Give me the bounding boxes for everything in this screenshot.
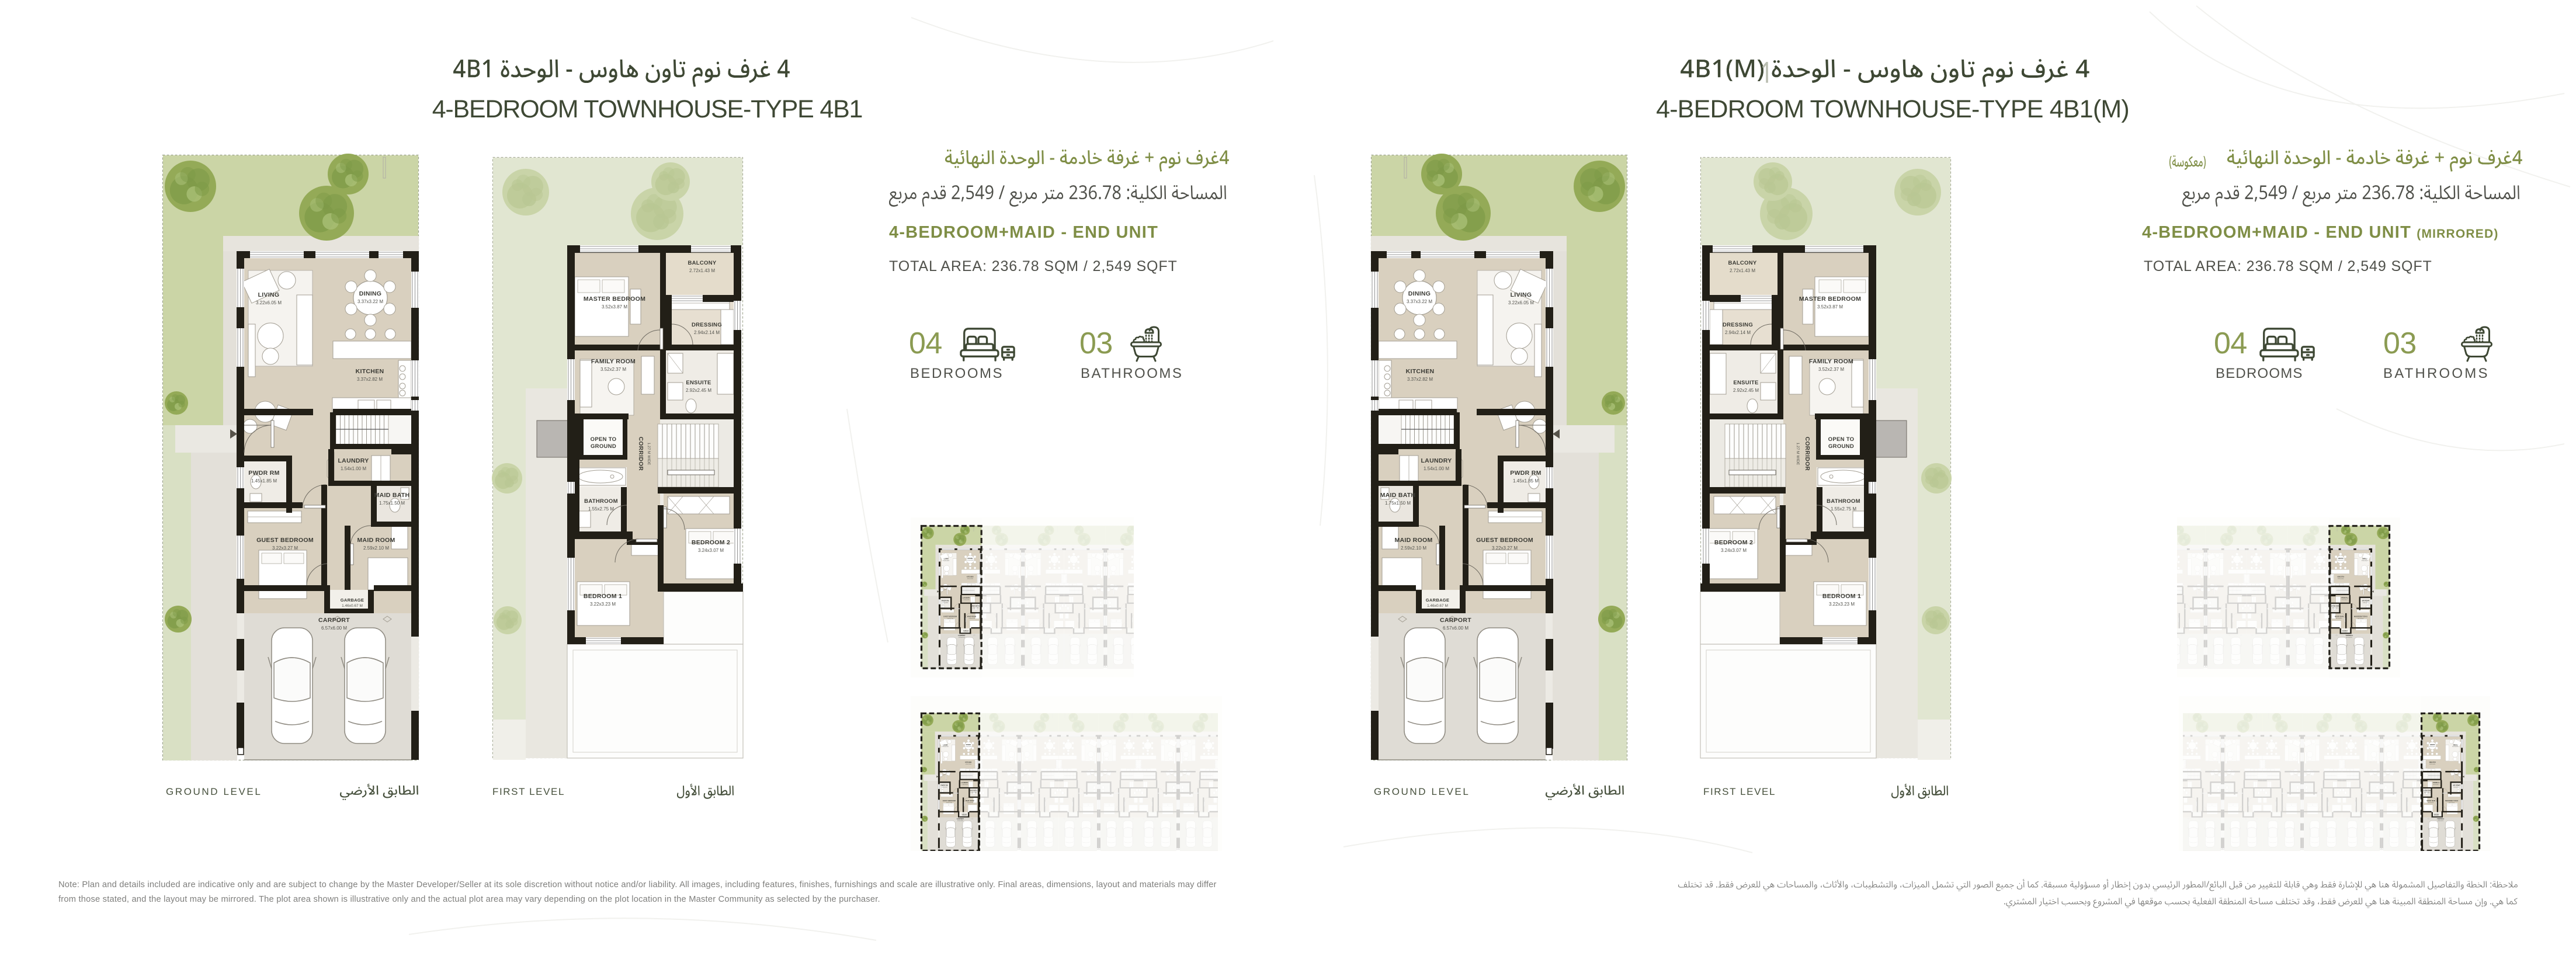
svg-text:LIVING: LIVING: [2453, 744, 2457, 746]
svg-text:1.75x1.50 M: 1.75x1.50 M: [2424, 792, 2430, 793]
svg-text:MAID ROOM: MAID ROOM: [2335, 616, 2344, 617]
svg-text:3.22x6.05 M: 3.22x6.05 M: [2361, 560, 2367, 561]
svg-text:1.55x2.75 M: 1.55x2.75 M: [1831, 506, 1856, 512]
svg-text:GUEST BEDROOM: GUEST BEDROOM: [2445, 800, 2458, 802]
svg-text:LAUNDRY: LAUNDRY: [963, 597, 970, 599]
svg-text:1.46x0.67 M: 1.46x0.67 M: [342, 604, 363, 608]
svg-text:DINING: DINING: [966, 744, 971, 746]
svg-text:2.92x2.45 M: 2.92x2.45 M: [686, 388, 711, 393]
svg-text:DRESSING: DRESSING: [692, 322, 722, 328]
svg-text:BALCONY: BALCONY: [688, 260, 716, 266]
svg-text:ENSUITE: ENSUITE: [1733, 380, 1758, 386]
svg-text:PWDR RM: PWDR RM: [2453, 785, 2460, 787]
svg-text:LIVING: LIVING: [1511, 291, 1532, 298]
svg-text:KITCHEN: KITCHEN: [965, 762, 971, 763]
svg-text:MAID BATH: MAID BATH: [2331, 605, 2339, 607]
svg-text:6.57x6.00 M: 6.57x6.00 M: [321, 626, 347, 631]
svg-text:3.37x2.82 M: 3.37x2.82 M: [2338, 578, 2344, 579]
svg-text:PWDR RM: PWDR RM: [248, 470, 279, 477]
svg-text:3.22x6.05 M: 3.22x6.05 M: [943, 560, 950, 561]
svg-text:GROUND: GROUND: [591, 443, 616, 450]
svg-text:1.27 M WIDE: 1.27 M WIDE: [1796, 443, 1800, 465]
svg-text:1.75x1.50 M: 1.75x1.50 M: [1385, 501, 1411, 506]
svg-text:3.22x6.05 M: 3.22x6.05 M: [256, 300, 282, 305]
svg-text:OPEN TO: OPEN TO: [591, 436, 617, 443]
svg-text:DRESSING: DRESSING: [1723, 322, 1753, 328]
svg-text:2.59x2.10 M: 2.59x2.10 M: [363, 545, 389, 551]
svg-text:3.37x2.82 M: 3.37x2.82 M: [967, 578, 974, 579]
svg-text:6.57x6.00 M: 6.57x6.00 M: [957, 821, 963, 822]
svg-text:3.37x3.22 M: 3.37x3.22 M: [967, 560, 974, 561]
svg-text:2.59x2.10 M: 2.59x2.10 M: [2336, 618, 2342, 620]
svg-text:3.52x2.37 M: 3.52x2.37 M: [1818, 367, 1844, 372]
svg-text:LIVING: LIVING: [944, 558, 949, 560]
svg-text:LAUNDRY: LAUNDRY: [2341, 597, 2348, 599]
svg-text:3.37x3.22 M: 3.37x3.22 M: [357, 299, 383, 304]
svg-text:1.45x1.85 M: 1.45x1.85 M: [2453, 787, 2459, 788]
svg-text:1.55x2.75 M: 1.55x2.75 M: [588, 506, 614, 512]
svg-text:2.59x2.10 M: 2.59x2.10 M: [2428, 802, 2433, 804]
svg-text:3.24x3.07 M: 3.24x3.07 M: [698, 548, 724, 553]
svg-text:2.92x2.45 M: 2.92x2.45 M: [1733, 388, 1759, 393]
svg-text:1.45x1.85 M: 1.45x1.85 M: [942, 787, 947, 788]
svg-text:KITCHEN: KITCHEN: [356, 368, 384, 375]
svg-text:CARPORT: CARPORT: [2437, 818, 2445, 820]
svg-text:PWDR RM: PWDR RM: [2362, 600, 2370, 602]
svg-text:3.22x6.05 M: 3.22x6.05 M: [1508, 300, 1534, 305]
svg-text:2.59x2.10 M: 2.59x2.10 M: [1401, 545, 1426, 551]
svg-text:CORRIDOR: CORRIDOR: [637, 437, 644, 471]
svg-text:CARPORT: CARPORT: [1440, 617, 1471, 624]
svg-text:1.75x1.50 M: 1.75x1.50 M: [379, 501, 405, 506]
svg-text:MAID BATH: MAID BATH: [374, 492, 410, 499]
svg-text:BATHROOM: BATHROOM: [1827, 498, 1860, 505]
svg-text:1.75x1.50 M: 1.75x1.50 M: [2332, 607, 2339, 609]
svg-text:1.27 M WIDE: 1.27 M WIDE: [647, 443, 651, 465]
svg-text:6.57x6.00 M: 6.57x6.00 M: [959, 637, 965, 638]
svg-text:1.54x1.00 M: 1.54x1.00 M: [2433, 784, 2439, 786]
svg-text:CARPORT: CARPORT: [958, 635, 966, 637]
svg-text:3.37x2.82 M: 3.37x2.82 M: [966, 764, 971, 765]
svg-text:1.75x1.50 M: 1.75x1.50 M: [973, 607, 979, 609]
svg-text:DINING: DINING: [2338, 558, 2343, 560]
svg-text:MASTER BEDROOM: MASTER BEDROOM: [584, 296, 645, 303]
svg-text:3.22x3.23 M: 3.22x3.23 M: [1829, 602, 1855, 607]
svg-text:CORRIDOR: CORRIDOR: [1804, 437, 1810, 471]
svg-text:2.59x2.10 M: 2.59x2.10 M: [968, 618, 975, 620]
svg-text:FAMILY ROOM: FAMILY ROOM: [591, 358, 636, 365]
svg-text:FAMILY ROOM: FAMILY ROOM: [1809, 358, 1853, 365]
svg-text:MAID ROOM: MAID ROOM: [966, 800, 974, 802]
svg-text:BALCONY: BALCONY: [1728, 260, 1756, 266]
svg-text:2.72x1.43 M: 2.72x1.43 M: [689, 268, 715, 273]
svg-text:DINING: DINING: [1408, 290, 1431, 297]
svg-text:GUEST BEDROOM: GUEST BEDROOM: [943, 616, 957, 617]
svg-text:BEDROOM 1: BEDROOM 1: [584, 593, 622, 600]
svg-text:3.22x3.27 M: 3.22x3.27 M: [2449, 802, 2455, 804]
svg-text:MAID BATH: MAID BATH: [970, 790, 978, 791]
svg-text:1.45x1.85 M: 1.45x1.85 M: [942, 602, 949, 603]
svg-text:3.24x3.07 M: 3.24x3.07 M: [1721, 548, 1747, 553]
svg-text:GUEST BEDROOM: GUEST BEDROOM: [2354, 616, 2367, 617]
svg-text:3.22x3.27 M: 3.22x3.27 M: [1492, 545, 1518, 551]
svg-text:CARPORT: CARPORT: [2345, 635, 2353, 637]
svg-text:LAUNDRY: LAUNDRY: [2432, 782, 2439, 784]
svg-text:BEDROOM 2: BEDROOM 2: [692, 539, 730, 546]
svg-text:BEDROOM 1: BEDROOM 1: [1822, 593, 1861, 600]
svg-text:1.46x0.67 M: 1.46x0.67 M: [1427, 604, 1448, 608]
svg-text:BEDROOM 2: BEDROOM 2: [1714, 539, 1753, 546]
svg-text:MAID BATH: MAID BATH: [1380, 492, 1416, 499]
svg-text:PWDR RM: PWDR RM: [942, 600, 949, 602]
svg-text:6.57x6.00 M: 6.57x6.00 M: [2438, 821, 2443, 822]
svg-text:3.22x6.05 M: 3.22x6.05 M: [2452, 746, 2458, 748]
svg-text:2.94x2.14 M: 2.94x2.14 M: [694, 330, 720, 335]
svg-text:3.22x3.27 M: 3.22x3.27 M: [272, 545, 298, 551]
svg-text:3.22x3.27 M: 3.22x3.27 M: [947, 618, 953, 620]
svg-text:CARPORT: CARPORT: [957, 818, 964, 820]
svg-text:6.57x6.00 M: 6.57x6.00 M: [1443, 626, 1468, 631]
svg-text:PWDR RM: PWDR RM: [941, 785, 948, 787]
svg-text:1.54x1.00 M: 1.54x1.00 M: [341, 466, 366, 471]
svg-text:1.45x1.85 M: 1.45x1.85 M: [251, 478, 277, 484]
svg-text:1.54x1.00 M: 1.54x1.00 M: [1424, 466, 1449, 471]
svg-text:GROUND: GROUND: [1828, 443, 1854, 450]
svg-text:3.37x2.82 M: 3.37x2.82 M: [357, 377, 383, 382]
svg-text:CARPORT: CARPORT: [318, 617, 350, 624]
svg-text:BATHROOM: BATHROOM: [584, 498, 618, 505]
svg-text:KITCHEN: KITCHEN: [2337, 576, 2344, 578]
svg-text:GARBAGE: GARBAGE: [1426, 597, 1449, 603]
svg-text:3.52x2.37 M: 3.52x2.37 M: [600, 367, 626, 372]
svg-text:PWDR RM: PWDR RM: [1510, 470, 1541, 477]
svg-text:3.22x6.05 M: 3.22x6.05 M: [942, 746, 948, 748]
svg-text:LAUNDRY: LAUNDRY: [1421, 457, 1452, 464]
svg-text:MAID ROOM: MAID ROOM: [357, 537, 395, 544]
svg-text:LIVING: LIVING: [943, 744, 947, 746]
svg-text:3.22x3.27 M: 3.22x3.27 M: [2358, 618, 2364, 620]
svg-text:3.37x2.82 M: 3.37x2.82 M: [1407, 377, 1433, 382]
svg-text:3.37x3.22 M: 3.37x3.22 M: [2337, 560, 2344, 561]
svg-text:MAID ROOM: MAID ROOM: [1394, 537, 1432, 544]
svg-text:OPEN TO: OPEN TO: [1828, 436, 1855, 443]
svg-text:LAUNDRY: LAUNDRY: [961, 782, 968, 784]
svg-text:GUEST BEDROOM: GUEST BEDROOM: [943, 800, 956, 802]
svg-text:ENSUITE: ENSUITE: [686, 380, 711, 386]
svg-text:3.52x3.87 M: 3.52x3.87 M: [602, 304, 627, 310]
svg-text:1.75x1.50 M: 1.75x1.50 M: [970, 792, 976, 793]
svg-text:3.22x3.23 M: 3.22x3.23 M: [590, 602, 616, 607]
svg-text:1.45x1.85 M: 1.45x1.85 M: [2362, 602, 2369, 603]
svg-text:1.54x1.00 M: 1.54x1.00 M: [2341, 599, 2348, 600]
svg-text:MAID BATH: MAID BATH: [971, 605, 980, 607]
svg-text:KITCHEN: KITCHEN: [967, 576, 974, 578]
svg-text:MAID ROOM: MAID ROOM: [2426, 800, 2435, 802]
svg-text:3.37x3.22 M: 3.37x3.22 M: [2429, 746, 2435, 748]
svg-text:KITCHEN: KITCHEN: [2429, 762, 2436, 763]
svg-text:2.94x2.14 M: 2.94x2.14 M: [1725, 330, 1751, 335]
svg-text:DINING: DINING: [967, 558, 973, 560]
svg-text:MASTER BEDROOM: MASTER BEDROOM: [1799, 296, 1861, 303]
svg-text:DINING: DINING: [2430, 744, 2435, 746]
svg-text:LAUNDRY: LAUNDRY: [338, 457, 369, 464]
svg-text:1.54x1.00 M: 1.54x1.00 M: [963, 599, 970, 600]
svg-text:1.45x1.85 M: 1.45x1.85 M: [1513, 478, 1539, 484]
svg-text:KITCHEN: KITCHEN: [1406, 368, 1435, 375]
svg-text:2.72x1.43 M: 2.72x1.43 M: [1730, 268, 1755, 273]
svg-text:GUEST BEDROOM: GUEST BEDROOM: [1476, 537, 1533, 544]
svg-text:MAID ROOM: MAID ROOM: [967, 616, 976, 617]
svg-text:GARBAGE: GARBAGE: [341, 597, 364, 603]
svg-text:3.37x3.22 M: 3.37x3.22 M: [1407, 299, 1432, 304]
svg-text:6.57x6.00 M: 6.57x6.00 M: [2346, 637, 2352, 638]
svg-text:LIVING: LIVING: [258, 291, 280, 298]
svg-text:DINING: DINING: [359, 290, 382, 297]
svg-text:3.37x3.22 M: 3.37x3.22 M: [966, 746, 971, 748]
svg-text:MAID BATH: MAID BATH: [2423, 790, 2431, 791]
svg-text:3.37x2.82 M: 3.37x2.82 M: [2429, 764, 2435, 765]
svg-text:2.59x2.10 M: 2.59x2.10 M: [967, 802, 973, 804]
svg-text:LIVING: LIVING: [2362, 558, 2367, 560]
svg-text:1.54x1.00 M: 1.54x1.00 M: [961, 784, 967, 786]
svg-text:3.22x3.27 M: 3.22x3.27 M: [946, 802, 952, 804]
svg-text:GUEST BEDROOM: GUEST BEDROOM: [256, 537, 314, 544]
svg-text:3.52x3.87 M: 3.52x3.87 M: [1817, 304, 1843, 310]
